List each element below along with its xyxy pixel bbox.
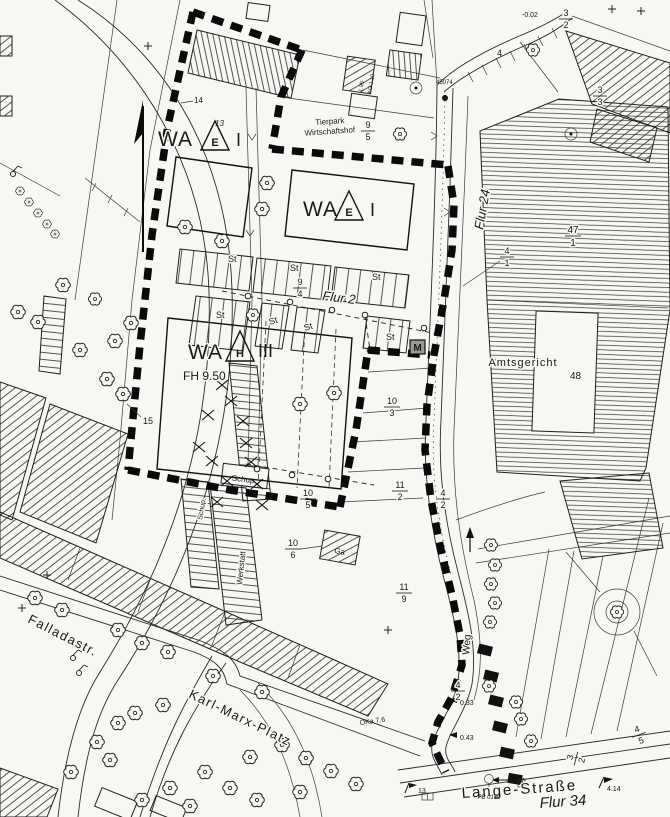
stall-label: St [372, 272, 381, 282]
garage-label: Ga [334, 546, 347, 557]
survey-cross-icon [608, 5, 616, 13]
stall-label: St [216, 310, 225, 320]
tree-icon [183, 799, 198, 812]
station-label: M [413, 343, 421, 354]
tree-icon [483, 616, 496, 628]
tree-icon [509, 696, 522, 708]
survey-point-icon [442, 95, 448, 101]
point-number: 13 [418, 788, 426, 795]
flow-arrow-icon [449, 732, 457, 738]
tree-icon [88, 293, 101, 305]
tree-icon [51, 230, 60, 238]
tree-icon [293, 397, 308, 410]
svg-text:1: 1 [504, 258, 509, 268]
tree-icon [135, 636, 150, 649]
svg-text:10: 10 [288, 538, 298, 548]
zone-type: WA [188, 341, 223, 364]
survey-cross-icon [384, 626, 392, 634]
svg-text:10: 10 [387, 396, 397, 406]
svg-text:2: 2 [563, 20, 568, 30]
svg-text:47: 47 [567, 225, 579, 236]
tree-icon [246, 309, 259, 321]
level-annotation: 0.97 [511, 778, 525, 785]
svg-text:5: 5 [637, 735, 645, 746]
zone-storeys: I [370, 200, 375, 220]
tree-icon [299, 751, 314, 764]
tree-icon [215, 234, 230, 247]
tree-icon [16, 187, 25, 195]
svg-text:4: 4 [504, 246, 509, 256]
tree-icon [206, 669, 221, 682]
tree-icon [111, 716, 126, 729]
zone-storeys: I [236, 130, 241, 150]
pb-point-label: PB 0150 [477, 795, 501, 801]
tree-icon [178, 220, 193, 233]
tree-icon [349, 777, 364, 790]
svg-text:2: 2 [440, 500, 445, 510]
tree-icon [255, 202, 270, 215]
tree-icon [484, 539, 497, 551]
zone-label-wa2: WA E I [303, 191, 375, 221]
tree-icon [103, 753, 118, 766]
tree-icon [135, 793, 150, 806]
svg-text:3: 3 [565, 754, 576, 761]
svg-text:9: 9 [365, 120, 370, 130]
north-arrow-icon [134, 100, 143, 252]
tree-icon [11, 305, 26, 318]
tree-icon [111, 623, 126, 636]
tree-icon [243, 750, 258, 763]
parcel-number: 4 [497, 48, 502, 58]
svg-text:4: 4 [633, 724, 641, 735]
werkstatt-building [210, 484, 262, 625]
svg-text:5: 5 [365, 132, 370, 142]
karl-marx-platz-label: Karl-Marx-Platz [187, 686, 294, 749]
svg-text:2: 2 [576, 757, 587, 764]
svg-text:11: 11 [395, 480, 404, 490]
tree-icon [163, 781, 178, 794]
demolition-x-icon [206, 456, 218, 466]
tree-icon [484, 578, 497, 590]
tree-icon [488, 597, 501, 609]
survey-cross-icon [637, 7, 645, 15]
zone-symbol: H [236, 348, 244, 360]
tree-icon [31, 315, 46, 328]
svg-text:4: 4 [455, 680, 460, 690]
cadastral-plan-page: M [0, 0, 670, 817]
svg-text:5: 5 [305, 500, 310, 510]
tree-icon [223, 781, 238, 794]
amtsgericht-label: Amtsgericht [488, 357, 557, 369]
svg-text:9: 9 [401, 594, 406, 604]
svg-text:9: 9 [297, 277, 302, 287]
tree-icon [255, 685, 270, 698]
level-annotation: -0.02 [522, 12, 538, 19]
parcel-fraction: 106 [285, 538, 301, 560]
zone-symbol: E [211, 137, 218, 149]
survey-cross-icon [18, 604, 26, 612]
tree-icon [526, 44, 539, 56]
parcel-number: 13 [215, 119, 224, 128]
tree-icon [73, 343, 88, 356]
tree-icon [156, 698, 171, 711]
zone-symbol: E [345, 207, 352, 219]
lamp-icon [10, 166, 22, 177]
tree-icon [55, 603, 70, 616]
stall-label: St [290, 263, 299, 273]
tree-icon [514, 713, 527, 725]
weg-label: Weg [461, 634, 474, 655]
tree-icon [64, 765, 79, 778]
tree-icon [198, 765, 213, 778]
parcel-fraction: 95 [361, 120, 375, 142]
svg-text:11: 11 [399, 582, 408, 592]
tree-icon [324, 764, 339, 777]
flur2-label: Flur 2 [322, 288, 358, 307]
gradient-annotation: 0.33 [460, 700, 474, 707]
tree-icon [488, 559, 501, 571]
survey-cross-icon [144, 42, 152, 50]
tree-icon [34, 209, 43, 217]
parcel-number: 14 [194, 96, 203, 105]
svg-text:3: 3 [389, 408, 394, 418]
stall-label: St [386, 332, 395, 342]
tree-icon [327, 386, 342, 399]
benchmark-flag-icon [405, 783, 417, 793]
tree-icon [124, 316, 139, 329]
tree-icon [116, 387, 131, 400]
tierpark-label-line2: Wirtschaftshof [304, 125, 356, 138]
amtsgericht-number: 48 [570, 371, 582, 382]
parcel-fraction: 32 [563, 749, 588, 768]
level-annotation: 4.14 [607, 786, 621, 793]
svg-text:6: 6 [290, 550, 295, 560]
tree-icon [56, 278, 71, 291]
tree-icon [393, 128, 406, 140]
svg-text:3: 3 [597, 85, 602, 95]
parcel-fraction: 119 [396, 582, 412, 604]
zone-type: WA [158, 128, 193, 151]
transformer-station: M [410, 340, 425, 354]
svg-text:4: 4 [297, 289, 302, 299]
tree-icon [43, 220, 52, 228]
tree-icon [260, 176, 275, 189]
parcel-fraction: 42 [436, 488, 450, 510]
development-plan-map: M [0, 0, 670, 817]
tree-icon [610, 606, 623, 618]
demolition-x-icon [256, 500, 268, 510]
svg-text:1: 1 [570, 238, 576, 249]
parcel-number: 15 [143, 416, 153, 426]
tree-icon [250, 793, 265, 806]
tree-icon [482, 680, 495, 692]
tree-icon [161, 645, 176, 658]
demolition-x-icon [202, 410, 214, 420]
direction-arrow-icon [466, 527, 474, 552]
tree-icon [100, 372, 115, 385]
zone-type: WA [303, 198, 338, 221]
svg-text:10: 10 [303, 488, 313, 498]
tree-icon [90, 735, 105, 748]
tree-icon [25, 198, 34, 206]
small-buildings-row [477, 643, 523, 785]
svg-text:2: 2 [397, 492, 402, 502]
tree-icon [108, 334, 123, 347]
amtsgericht-courtyard [532, 311, 598, 433]
tree-icon [293, 785, 308, 798]
gradient-annotation: 0.43 [460, 735, 474, 742]
tree-icon [28, 591, 43, 604]
svg-text:4: 4 [440, 488, 445, 498]
parcel-fraction: 103 [384, 396, 400, 418]
svg-text:3: 3 [563, 8, 568, 18]
tree-icon [128, 706, 143, 719]
ridge-height-label: FH 9.50 [183, 369, 226, 383]
stall-label: St [228, 254, 237, 264]
point-number: 45074 [436, 80, 453, 86]
svg-text:3: 3 [597, 97, 602, 107]
zone-label-wa1: WA E I [158, 121, 241, 151]
zone-storeys: III [258, 341, 273, 361]
lamp-icon [76, 665, 88, 676]
tree-icon [524, 735, 537, 747]
